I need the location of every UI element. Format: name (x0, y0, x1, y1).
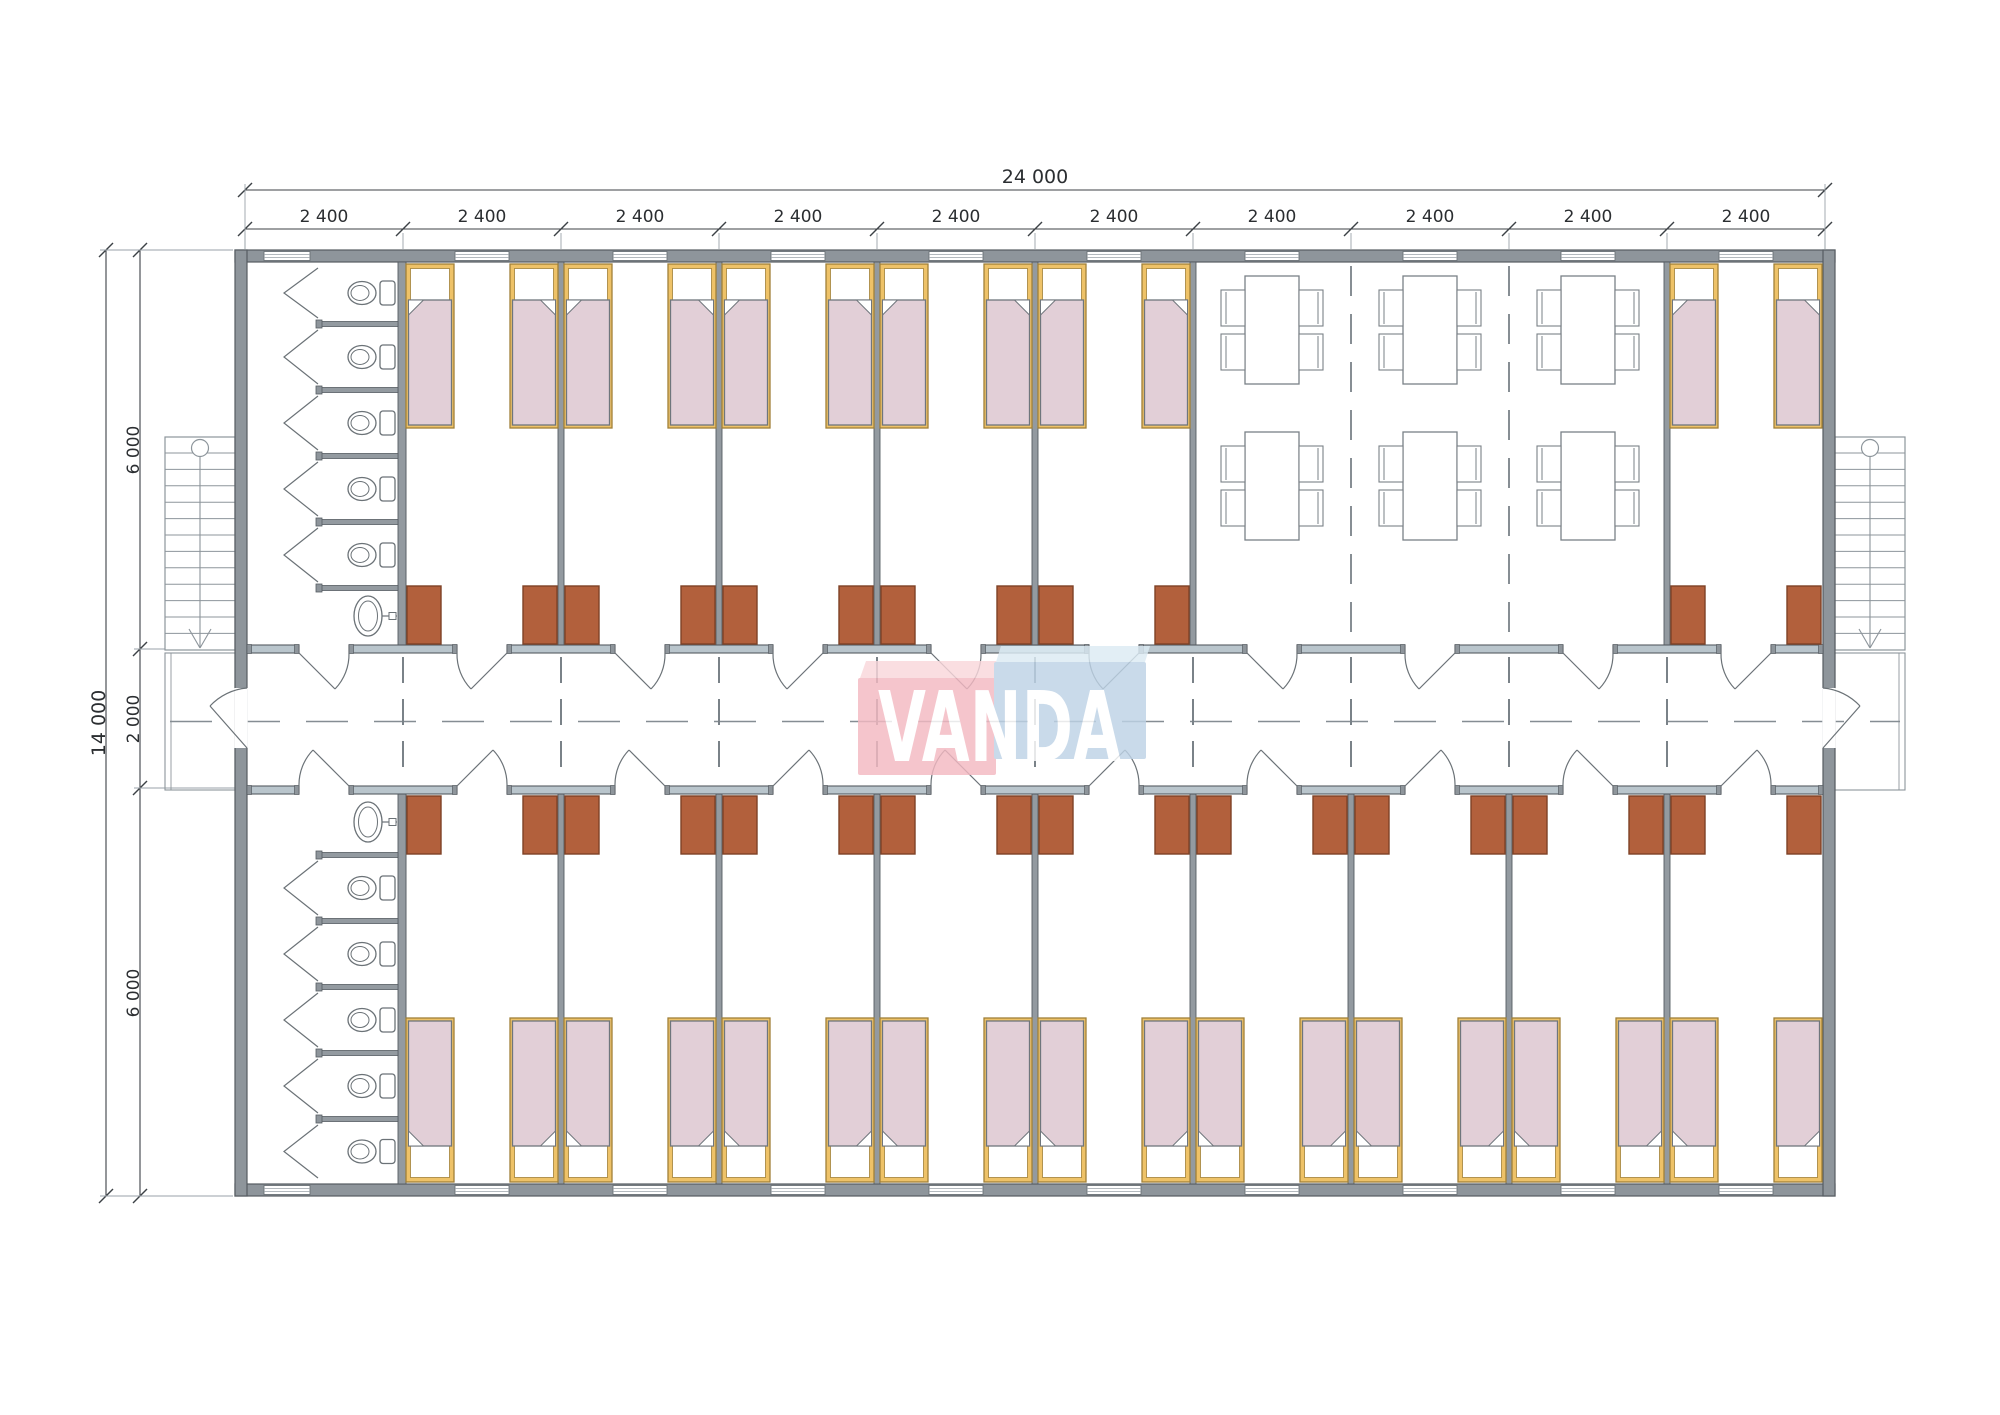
window-frame (613, 252, 667, 261)
wc-stall-divider (318, 1117, 398, 1122)
wall-end-cap (316, 917, 322, 925)
dining-table (1403, 276, 1457, 384)
door-swing-arc (299, 750, 313, 786)
dining-table-group (1379, 432, 1481, 540)
wall-end-cap (1243, 786, 1248, 795)
room-door (457, 750, 507, 786)
bed-blanket (829, 300, 872, 425)
window-frame (929, 252, 983, 261)
toilet (348, 543, 395, 567)
door-leaf (787, 653, 823, 689)
wall-end-cap (1717, 786, 1722, 795)
bed (826, 264, 874, 428)
window (1403, 1186, 1457, 1195)
entry-opening-left (234, 688, 247, 748)
wc-stall-door (284, 268, 318, 318)
chair (1615, 490, 1639, 526)
wall-end-cap (1455, 786, 1460, 795)
overall-width-label: 24 000 (1002, 166, 1068, 188)
wall-end-cap (823, 645, 828, 654)
window-frame (264, 1186, 310, 1195)
wall-end-cap (1771, 786, 1776, 795)
door-leaf (1721, 750, 1757, 786)
window-frame (1245, 252, 1299, 261)
window-frame (1561, 1186, 1615, 1195)
sanitary-wall (398, 794, 406, 1184)
window-frame (1087, 252, 1141, 261)
room-partition-wall (1348, 794, 1354, 1184)
wall-end-cap (507, 786, 512, 795)
room-partition-wall (874, 262, 880, 645)
staircase-left (165, 437, 235, 650)
corridor-wall-segment (1455, 786, 1563, 794)
toilet (348, 345, 395, 369)
chair (1457, 334, 1481, 370)
window (264, 252, 310, 261)
corridor-wall-segment (1771, 645, 1823, 653)
toilet (348, 411, 395, 435)
wc-stall-divider (318, 985, 398, 990)
bed-blanket (513, 300, 556, 425)
door-leaf (1563, 653, 1599, 689)
room-door (1563, 750, 1613, 786)
corridor-wall-segment (1139, 645, 1247, 653)
bed (984, 264, 1032, 428)
wardrobe (1155, 796, 1189, 854)
wardrobe (1671, 586, 1705, 644)
bed-blanket (883, 300, 926, 425)
sanitary-wall (398, 262, 406, 645)
window (771, 252, 825, 261)
chair (1221, 446, 1245, 482)
window-frame (1719, 1186, 1773, 1195)
corridor-wall-segment (1139, 786, 1247, 794)
bed-blanket (1619, 1021, 1662, 1146)
room-door (1247, 750, 1297, 786)
window (1561, 252, 1615, 261)
dining-table (1403, 432, 1457, 540)
wc-stall-door (284, 528, 318, 582)
wardrobe (523, 796, 557, 854)
bed-blanket (1461, 1021, 1504, 1146)
door-swing-arc (1405, 653, 1419, 689)
window (613, 252, 667, 261)
door-swing-arc (1721, 653, 1735, 689)
wall-end-cap (453, 645, 458, 654)
toilet (348, 1074, 395, 1098)
wall-end-cap (316, 320, 322, 328)
staircase-right (1835, 437, 1905, 650)
room-partition-wall (1032, 262, 1038, 645)
wardrobe (407, 796, 441, 854)
wall-end-cap (1139, 786, 1144, 795)
floor-plan-sheet: 2 4002 4002 4002 4002 4002 4002 4002 400… (0, 0, 2000, 1415)
wardrobe (1313, 796, 1347, 854)
window-frame (613, 1186, 667, 1195)
wardrobe (565, 796, 599, 854)
window-frame (771, 1186, 825, 1195)
window (1719, 252, 1773, 261)
corridor-wall-segment (1613, 645, 1721, 653)
wall-end-cap (247, 786, 252, 795)
bed-blanket (1199, 1021, 1242, 1146)
door-swing-arc (1757, 750, 1771, 786)
wall-end-cap (1819, 645, 1824, 654)
door-swing-arc (809, 750, 823, 786)
bed-blanket (725, 1021, 768, 1146)
window (929, 1186, 983, 1195)
wardrobe (881, 796, 915, 854)
floor-plan: 2 4002 4002 4002 4002 4002 4002 4002 400… (0, 0, 2000, 1415)
bed (1142, 264, 1190, 428)
wall-end-cap (453, 786, 458, 795)
chair (1457, 490, 1481, 526)
bed-blanket (567, 300, 610, 425)
wall-end-cap (665, 786, 670, 795)
room-door (299, 653, 349, 689)
toilet (348, 942, 395, 966)
module-width-label: 2 400 (616, 207, 665, 227)
toilet-bowl (348, 412, 376, 435)
wardrobe (997, 586, 1031, 644)
room-partition-wall (558, 262, 564, 645)
door-leaf (1419, 653, 1455, 689)
bed (1670, 264, 1718, 428)
stair-start-marker (1862, 440, 1879, 457)
bed-blanket (883, 1021, 926, 1146)
window (613, 1186, 667, 1195)
bed (668, 264, 716, 428)
door-leaf (1405, 750, 1441, 786)
room-door (773, 653, 823, 689)
corridor-wall-segment (507, 645, 615, 653)
wall-end-cap (507, 645, 512, 654)
wall-end-cap (316, 452, 322, 460)
toilet-tank (380, 281, 395, 305)
toilet-tank (380, 942, 395, 966)
door-swing-arc (1563, 750, 1577, 786)
wardrobe (839, 796, 873, 854)
window (1087, 252, 1141, 261)
wardrobe (1629, 796, 1663, 854)
chair (1299, 490, 1323, 526)
door-leaf (313, 750, 349, 786)
chair (1537, 334, 1561, 370)
bed (406, 1018, 454, 1182)
window (929, 252, 983, 261)
wall-end-cap (316, 518, 322, 526)
bed (722, 264, 770, 428)
wardrobe (1513, 796, 1547, 854)
door-leaf (773, 750, 809, 786)
stair-start-marker (192, 440, 209, 457)
bed-blanket (409, 300, 452, 425)
corridor-wall-segment (247, 786, 299, 794)
door-swing-arc (1441, 750, 1455, 786)
sink-tap-base (389, 613, 396, 620)
corridor-wall-segment (349, 786, 457, 794)
door-leaf (1261, 750, 1297, 786)
bed-blanket (1145, 300, 1188, 425)
wardrobe (1355, 796, 1389, 854)
wardrobe (565, 586, 599, 644)
bed (1354, 1018, 1402, 1182)
wall-end-cap (769, 786, 774, 795)
corridor-wall-segment (665, 786, 773, 794)
chair (1615, 334, 1639, 370)
room-partition-wall (716, 262, 722, 645)
door-swing-arc (457, 653, 471, 689)
window (455, 252, 509, 261)
room-door (457, 653, 507, 689)
bottom-wing-depth-label: 6 000 (124, 969, 144, 1018)
bed (1670, 1018, 1718, 1182)
dining-table (1245, 432, 1299, 540)
bed-blanket (987, 300, 1030, 425)
window-frame (1087, 1186, 1141, 1195)
bed-blanket (567, 1021, 610, 1146)
wall-end-cap (295, 645, 300, 654)
wc-stall-door (284, 1125, 318, 1178)
chair (1379, 334, 1403, 370)
bed (668, 1018, 716, 1182)
top-wing-depth-label: 6 000 (124, 426, 144, 475)
wall-end-cap (1717, 645, 1722, 654)
bed-blanket (1673, 1021, 1716, 1146)
toilet-bowl (348, 282, 376, 305)
corridor-wall-segment (823, 645, 931, 653)
wall-end-cap (1559, 786, 1564, 795)
wardrobe (1471, 796, 1505, 854)
corridor-wall-segment (981, 786, 1089, 794)
chair (1615, 290, 1639, 326)
bed-blanket (671, 1021, 714, 1146)
wc-stall-door (284, 462, 318, 516)
wall-end-cap (349, 645, 354, 654)
door-leaf (457, 750, 493, 786)
module-width-label: 2 400 (1090, 207, 1139, 227)
window (771, 1186, 825, 1195)
wardrobe (681, 586, 715, 644)
room-partition-wall (1506, 794, 1512, 1184)
bed-blanket (725, 300, 768, 425)
bed-blanket (1673, 300, 1716, 425)
room-door (773, 750, 823, 786)
wardrobe (681, 796, 715, 854)
door-swing-arc (773, 653, 787, 689)
chair (1221, 334, 1245, 370)
dining-table-group (1537, 432, 1639, 540)
door-leaf (615, 653, 651, 689)
window (1245, 1186, 1299, 1195)
door-swing-arc (1247, 750, 1261, 786)
bed (1458, 1018, 1506, 1182)
toilet-tank (380, 345, 395, 369)
room-partition-wall (874, 794, 880, 1184)
toilet (348, 1140, 395, 1164)
toilet-tank (380, 1008, 395, 1032)
toilet-bowl (348, 877, 376, 900)
toilet-tank (380, 411, 395, 435)
window-frame (929, 1186, 983, 1195)
wall-end-cap (316, 1049, 322, 1057)
wall-end-cap (1771, 645, 1776, 654)
wall-end-cap (316, 584, 322, 592)
bed (564, 1018, 612, 1182)
bed-blanket (1515, 1021, 1558, 1146)
window-frame (771, 252, 825, 261)
wall-end-cap (769, 645, 774, 654)
dining-table (1561, 432, 1615, 540)
corridor-wall-segment (349, 645, 457, 653)
door-leaf (1577, 750, 1613, 786)
chair (1537, 290, 1561, 326)
chair (1537, 446, 1561, 482)
bed (564, 264, 612, 428)
wc-stall-door (284, 927, 318, 981)
window (1719, 1186, 1773, 1195)
room-door (1721, 750, 1771, 786)
toilet-tank (380, 477, 395, 501)
door-leaf (1735, 653, 1771, 689)
wc-stall-divider (318, 454, 398, 459)
wc-stall-divider (318, 853, 398, 858)
wardrobe (1787, 796, 1821, 854)
wardrobe (1039, 586, 1073, 644)
wall-end-cap (316, 1115, 322, 1123)
vanda-logo: VANDA (858, 646, 1150, 784)
bed-blanket (987, 1021, 1030, 1146)
bed (826, 1018, 874, 1182)
dining-table (1561, 276, 1615, 384)
room-door (299, 750, 349, 786)
wardrobe (1155, 586, 1189, 644)
chair (1457, 446, 1481, 482)
wardrobe (723, 586, 757, 644)
window (455, 1186, 509, 1195)
bed (510, 1018, 558, 1182)
bed (1038, 1018, 1086, 1182)
corridor-wall-segment (1297, 645, 1405, 653)
wardrobe (1039, 796, 1073, 854)
wall-end-cap (1819, 786, 1824, 795)
bed (984, 1018, 1032, 1182)
door-leaf (471, 653, 507, 689)
room-door (1721, 653, 1771, 689)
door-swing-arc (1599, 653, 1613, 689)
wall-end-cap (1613, 645, 1618, 654)
door-swing-arc (335, 653, 349, 689)
chair (1221, 290, 1245, 326)
corridor-wall-segment (247, 645, 299, 653)
wardrobe (523, 586, 557, 644)
wall-end-cap (981, 645, 986, 654)
chair (1299, 290, 1323, 326)
wall-end-cap (1401, 645, 1406, 654)
room-door (1563, 653, 1613, 689)
chair (1457, 290, 1481, 326)
corridor-wall-segment (1297, 786, 1405, 794)
bed-blanket (1777, 1021, 1820, 1146)
wall-end-cap (1613, 786, 1618, 795)
wall-end-cap (316, 386, 322, 394)
wardrobe (407, 586, 441, 644)
door-swing-arc (651, 653, 665, 689)
room-door (1405, 750, 1455, 786)
bed (1512, 1018, 1560, 1182)
wc-stall-divider (318, 1051, 398, 1056)
wall-end-cap (823, 786, 828, 795)
window (1403, 252, 1457, 261)
window-frame (455, 1186, 509, 1195)
window (1087, 1186, 1141, 1195)
wardrobe (1787, 586, 1821, 644)
wall-end-cap (1243, 645, 1248, 654)
wall-end-cap (316, 983, 322, 991)
bed (880, 264, 928, 428)
window-frame (1403, 252, 1457, 261)
dining-table-group (1221, 432, 1323, 540)
wall-end-cap (665, 645, 670, 654)
toilet-bowl (348, 1075, 376, 1098)
corridor-wall-segment (1455, 645, 1563, 653)
toilet-bowl (348, 1009, 376, 1032)
wall-end-cap (349, 786, 354, 795)
module-width-label: 2 400 (458, 207, 507, 227)
wall-end-cap (1297, 645, 1302, 654)
wall-end-cap (247, 645, 252, 654)
wc-stall-divider (318, 586, 398, 591)
bed (1196, 1018, 1244, 1182)
module-width-label: 2 400 (932, 207, 981, 227)
corridor-wall-segment (1613, 786, 1721, 794)
wall-end-cap (316, 851, 322, 859)
logo-text: VANDA (878, 671, 1121, 784)
door-leaf (299, 653, 335, 689)
room-partition-wall (1190, 262, 1196, 645)
chair (1299, 334, 1323, 370)
bed-blanket (671, 300, 714, 425)
wall-end-cap (1085, 786, 1090, 795)
toilet-tank (380, 543, 395, 567)
bed-blanket (1303, 1021, 1346, 1146)
window (1245, 252, 1299, 261)
wc-stall-divider (318, 919, 398, 924)
wall-end-cap (611, 645, 616, 654)
chair (1379, 290, 1403, 326)
door-swing-arc (615, 750, 629, 786)
wardrobe (723, 796, 757, 854)
window-frame (1245, 1186, 1299, 1195)
dining-table (1245, 276, 1299, 384)
bed-blanket (409, 1021, 452, 1146)
entry-opening-right (1822, 688, 1835, 748)
logo-blue-top-face (996, 646, 1150, 662)
wc-stall-door (284, 330, 318, 384)
wardrobe (881, 586, 915, 644)
window (1561, 1186, 1615, 1195)
window-frame (1561, 252, 1615, 261)
bed (510, 264, 558, 428)
wardrobe (1197, 796, 1231, 854)
room-partition-wall (558, 794, 564, 1184)
window-frame (1403, 1186, 1457, 1195)
bed-blanket (1777, 300, 1820, 425)
toilet (348, 1008, 395, 1032)
sink (354, 596, 397, 636)
room-partition-wall (1190, 794, 1196, 1184)
toilet-tank (380, 876, 395, 900)
